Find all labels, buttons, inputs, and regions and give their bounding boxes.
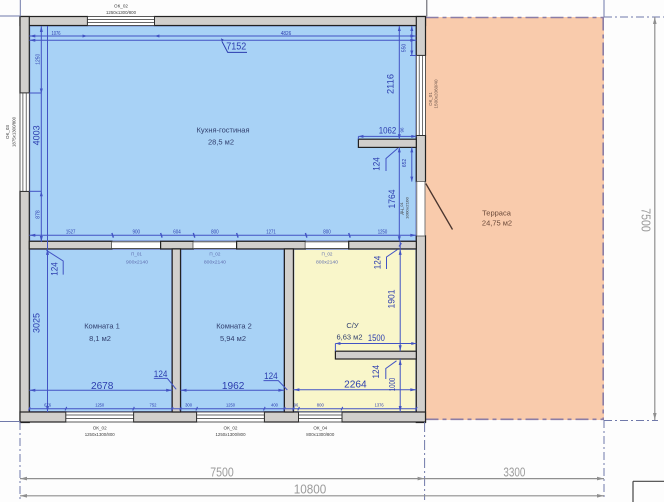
svg-text:ОК_02: ОК_02 [114, 4, 128, 9]
svg-text:5,94 м2: 5,94 м2 [220, 334, 246, 343]
svg-text:1376: 1376 [375, 403, 384, 408]
svg-text:752: 752 [150, 403, 157, 408]
svg-text:1250x1300/800: 1250x1300/800 [85, 432, 115, 437]
svg-text:800x2140: 800x2140 [316, 259, 338, 264]
svg-text:800x2140: 800x2140 [204, 259, 226, 264]
svg-text:1250: 1250 [378, 229, 388, 235]
svg-text:Терраса: Терраса [482, 209, 512, 218]
svg-text:400: 400 [271, 403, 278, 408]
svg-text:1250x1300/800: 1250x1300/800 [106, 10, 136, 15]
svg-text:1000x2100: 1000x2100 [405, 196, 410, 219]
svg-text:124: 124 [264, 371, 278, 381]
svg-text:ОК_04: ОК_04 [313, 426, 327, 431]
svg-text:1250: 1250 [226, 403, 235, 408]
svg-text:6,63 м2: 6,63 м2 [336, 333, 362, 342]
svg-text:ДЦ_01: ДЦ_01 [399, 202, 404, 215]
svg-text:7500: 7500 [210, 464, 234, 479]
svg-text:1527: 1527 [66, 229, 76, 235]
svg-text:900x2140: 900x2140 [126, 259, 148, 264]
svg-text:96: 96 [400, 127, 405, 132]
svg-text:7500: 7500 [639, 208, 654, 232]
svg-text:1875x1300/800: 1875x1300/800 [12, 117, 17, 147]
svg-text:550: 550 [402, 44, 408, 53]
svg-text:3025: 3025 [32, 313, 42, 333]
svg-text:24,75 м2: 24,75 м2 [482, 219, 512, 228]
svg-text:800: 800 [317, 403, 324, 408]
svg-text:2264: 2264 [344, 379, 367, 391]
svg-text:1000: 1000 [387, 378, 397, 392]
svg-text:124: 124 [49, 262, 59, 276]
svg-text:800: 800 [323, 229, 331, 235]
svg-text:28,5 м2: 28,5 м2 [208, 138, 234, 147]
svg-text:604: 604 [173, 229, 181, 235]
svg-text:124: 124 [154, 369, 168, 379]
svg-text:ОК_02: ОК_02 [224, 426, 238, 431]
svg-text:С/У: С/У [346, 321, 359, 330]
svg-text:8,1 м2: 8,1 м2 [89, 334, 111, 343]
svg-text:1962: 1962 [222, 380, 245, 392]
svg-text:800x1300/800: 800x1300/800 [306, 432, 334, 437]
svg-text:1901: 1901 [387, 290, 397, 309]
svg-text:1062: 1062 [379, 126, 397, 137]
svg-text:900: 900 [132, 229, 140, 235]
svg-text:Комната 1: Комната 1 [84, 322, 120, 331]
svg-text:1250: 1250 [95, 403, 104, 408]
svg-text:ОК_02: ОК_02 [93, 426, 107, 431]
svg-text:300: 300 [185, 403, 192, 408]
svg-text:4826: 4826 [281, 31, 292, 37]
svg-text:1076: 1076 [52, 31, 61, 37]
svg-text:878: 878 [36, 210, 42, 219]
svg-text:124: 124 [372, 157, 382, 171]
svg-text:1271: 1271 [266, 229, 276, 235]
svg-text:652: 652 [402, 159, 408, 168]
svg-text:124: 124 [371, 365, 381, 379]
svg-text:2116: 2116 [386, 74, 396, 94]
svg-text:П_01: П_01 [131, 252, 142, 257]
svg-text:3300: 3300 [503, 464, 525, 479]
svg-text:ОК_01: ОК_01 [428, 92, 433, 106]
svg-text:1250: 1250 [36, 54, 42, 65]
svg-text:4003: 4003 [32, 125, 42, 145]
svg-text:1500x2060/40: 1500x2060/40 [434, 79, 439, 109]
svg-text:7152: 7152 [226, 42, 246, 53]
svg-text:96: 96 [294, 403, 299, 408]
svg-text:676: 676 [44, 403, 51, 408]
svg-text:Комната 2: Комната 2 [216, 322, 252, 331]
svg-text:П_02: П_02 [322, 252, 333, 257]
svg-text:ОК_03: ОК_03 [5, 125, 10, 139]
svg-text:800: 800 [211, 229, 219, 235]
svg-text:10800: 10800 [294, 481, 327, 496]
svg-text:2678: 2678 [91, 380, 114, 392]
svg-text:1764: 1764 [387, 190, 397, 209]
svg-text:1250x1300/800: 1250x1300/800 [216, 432, 246, 437]
svg-text:Кухня-гостиная: Кухня-гостиная [196, 126, 249, 135]
svg-text:П_02: П_02 [209, 252, 220, 257]
svg-text:1500: 1500 [368, 333, 385, 344]
svg-text:124: 124 [373, 256, 383, 270]
